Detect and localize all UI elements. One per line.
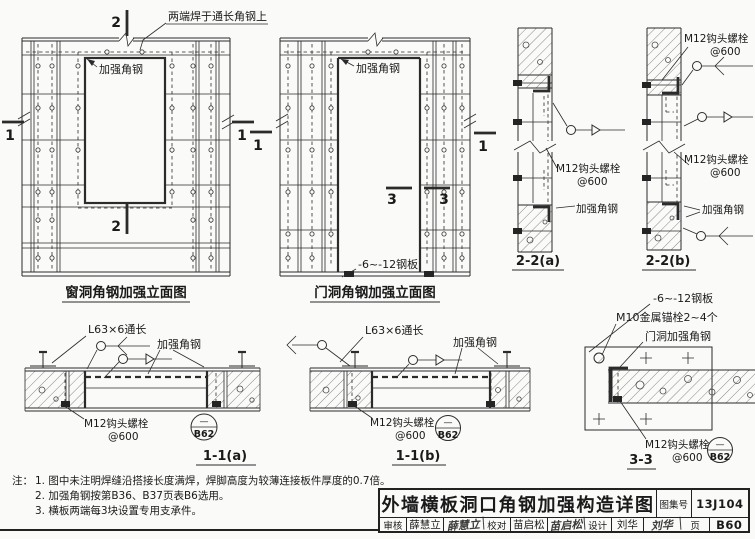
label-continuous-angle: L63×6通长	[365, 324, 423, 337]
figure-door-elevation: 1 1 3 3 加强角钢 -6~-12钢板 门洞角钢加强立面图	[250, 33, 496, 302]
weld-symbol-top	[682, 57, 753, 85]
break-marks	[276, 33, 476, 128]
ref-detail-number: —	[200, 417, 209, 427]
drawing-canvas: 2 2 1 1 两端焊于通长角钢上 加强角钢 窗洞角钢加强立面图	[0, 0, 755, 478]
label-reinforcing-angle: 加强角钢	[157, 338, 201, 351]
weld-symbol	[553, 103, 625, 135]
section-label: 1	[253, 138, 263, 154]
atlas-number: 13J104	[692, 490, 748, 517]
caption-window-elevation: 窗洞角钢加强立面图	[65, 284, 187, 301]
sheet-title: 外墙横板洞口角钢加强构造详图	[380, 490, 657, 517]
caption-section-2-2a: 2-2(a)	[516, 254, 560, 269]
section-mark-1-right: 1	[474, 133, 496, 155]
section-label: 2	[111, 15, 121, 31]
reviewer-name: 薛慧立	[407, 518, 445, 531]
label-hook-bolt-spacing: @600	[108, 431, 139, 443]
label-continuous-angle: L63×6通长	[88, 323, 146, 336]
notes-prefix: 注：	[12, 474, 33, 519]
label-reinforcing-angle: 加强角钢	[702, 203, 744, 216]
ref-page-number: B62	[194, 429, 214, 440]
label-reinforcing-angle: 加强角钢	[99, 63, 143, 76]
checker-signature: 苗启松	[548, 517, 585, 533]
atlas-number-label: 图集号	[657, 490, 692, 517]
caption-section-1-1b: 1-1(b)	[396, 449, 441, 464]
label-hook-bolt: M12钩头螺栓	[645, 438, 710, 451]
page-label: 页	[681, 518, 711, 531]
label-reinforcing-angle: 加强角钢	[356, 62, 400, 75]
ref-detail-number: —	[716, 440, 725, 450]
note-line: 1. 图中未注明焊缝沿搭接长度满焊，焊脚高度为较薄连接板件厚度的0.7倍。	[35, 474, 391, 489]
label-anchor-bolt: M10金属锚栓2~4个	[616, 310, 718, 324]
section-mark-1-left: 1	[2, 122, 24, 144]
designer-label: 设计	[585, 518, 612, 531]
note-line: 3. 横板两端每3块设置专用支承件。	[35, 504, 391, 519]
section-label: 2	[111, 219, 121, 235]
leader-arrow	[341, 59, 349, 65]
label-reinforcing-angle: 加强角钢	[576, 202, 618, 215]
section-label: 1	[237, 128, 247, 144]
detail-ref-bubble: — B62	[191, 414, 217, 440]
caption-section-1-1a: 1-1(a)	[203, 449, 247, 464]
label-hook-bolt: M12钩头螺栓	[556, 162, 621, 175]
section-label: 3	[439, 192, 449, 208]
break-mark	[514, 141, 556, 153]
label-steel-plate: -6~-12钢板	[358, 257, 418, 271]
section-mark-2-bottom: 2	[111, 204, 127, 235]
label-hook-bolt: M12钩头螺栓	[684, 153, 749, 166]
label-hook-bolt-spacing: @600	[672, 452, 703, 464]
title-block: 外墙横板洞口角钢加强构造详图 图集号 13J104 审核 薛慧立 薛慧立 校对 …	[378, 488, 750, 533]
detail-ref-bubble: — B62	[708, 438, 733, 464]
figure-section-2-2a: M12钩头螺栓 @600 加强角钢 2-2(a)	[512, 28, 625, 270]
door-opening	[338, 58, 420, 272]
sheet-bottom-rule	[0, 529, 378, 531]
break-mark	[643, 141, 685, 153]
caption-section-3-3: 3-3	[629, 453, 653, 468]
section-label: 3	[387, 192, 397, 208]
checker-label: 校对	[484, 518, 511, 531]
angle-steel-right	[229, 352, 255, 368]
label-weld-note: 两端焊于通长角钢上	[168, 9, 267, 23]
checker-name: 苗启松	[511, 518, 549, 531]
designer-signature: 刘华	[644, 517, 681, 533]
bolt-dots	[286, 50, 464, 260]
figure-section-2-2b: M12钩头螺栓 @600 M12钩头螺栓 @600 加强角钢 2-2(b)	[642, 28, 753, 270]
caption-door-elevation: 门洞角钢加强立面图	[314, 284, 436, 301]
general-notes: 注： 1. 图中未注明焊缝沿搭接长度满焊，焊脚高度为较薄连接板件厚度的0.7倍。…	[12, 474, 384, 519]
label-hook-bolt-spacing: @600	[395, 430, 426, 442]
ref-page-number: B62	[710, 452, 730, 463]
label-hook-bolt-spacing: @600	[710, 46, 741, 58]
label-hook-bolt: M12钩头螺栓	[84, 417, 149, 430]
angle-steel-left	[342, 352, 368, 368]
break-marks	[18, 33, 234, 129]
angle-steel-left	[30, 352, 56, 368]
label-hook-bolt: M12钩头螺栓	[370, 416, 435, 429]
ref-page-number: B62	[438, 430, 458, 441]
section-label: 1	[478, 139, 488, 155]
section-mark-2-top: 2	[111, 10, 127, 36]
caption-section-2-2b: 2-2(b)	[646, 254, 691, 269]
label-hook-bolt-spacing: @600	[577, 176, 608, 188]
figure-section-1-1b: L63×6通长 加强角钢 M12钩头螺栓 @600 — B62 1-1(b)	[287, 324, 530, 465]
weld-symbol-mid	[684, 112, 753, 126]
bolt-dots	[36, 50, 213, 260]
page-number: B60	[710, 518, 748, 531]
label-hook-bolt: M12钩头螺栓	[684, 32, 749, 45]
detail-ref-bubble: — B62	[436, 416, 461, 442]
reviewer-label: 审核	[380, 518, 407, 531]
reviewer-signature: 薛慧立	[444, 517, 484, 533]
note-line: 2. 加强角钢按第B36、B37页表B6选用。	[35, 489, 391, 504]
label-reinforcing-angle: 加强角钢	[453, 336, 497, 349]
figure-section-1-1a: L63×6通长 加强角钢 M12钩头螺栓 @600 — B62 1-1(a)	[25, 323, 260, 465]
figure-section-3-3: -6~-12钢板 M10金属锚栓2~4个 门洞加强角钢 M12钩头螺栓 @600…	[585, 291, 755, 469]
designer-name: 刘华	[612, 518, 645, 531]
section-label: 1	[5, 128, 15, 144]
angle-steel-right	[494, 352, 520, 368]
weld-symbol-bottom	[683, 227, 753, 245]
figure-window-elevation: 2 2 1 1 两端焊于通长角钢上 加强角钢 窗洞角钢加强立面图	[2, 9, 268, 302]
label-steel-plate: -6~-12钢板	[653, 291, 713, 305]
window-opening	[85, 58, 165, 203]
section-mark-3-left: 3	[386, 188, 412, 208]
label-hook-bolt-spacing: @600	[710, 167, 741, 179]
label-door-angle: 门洞加强角钢	[645, 329, 711, 343]
section-mark-1-left: 1	[250, 132, 272, 154]
drawing-sheet: 2 2 1 1 两端焊于通长角钢上 加强角钢 窗洞角钢加强立面图	[0, 0, 755, 539]
ref-detail-number: —	[444, 418, 453, 428]
